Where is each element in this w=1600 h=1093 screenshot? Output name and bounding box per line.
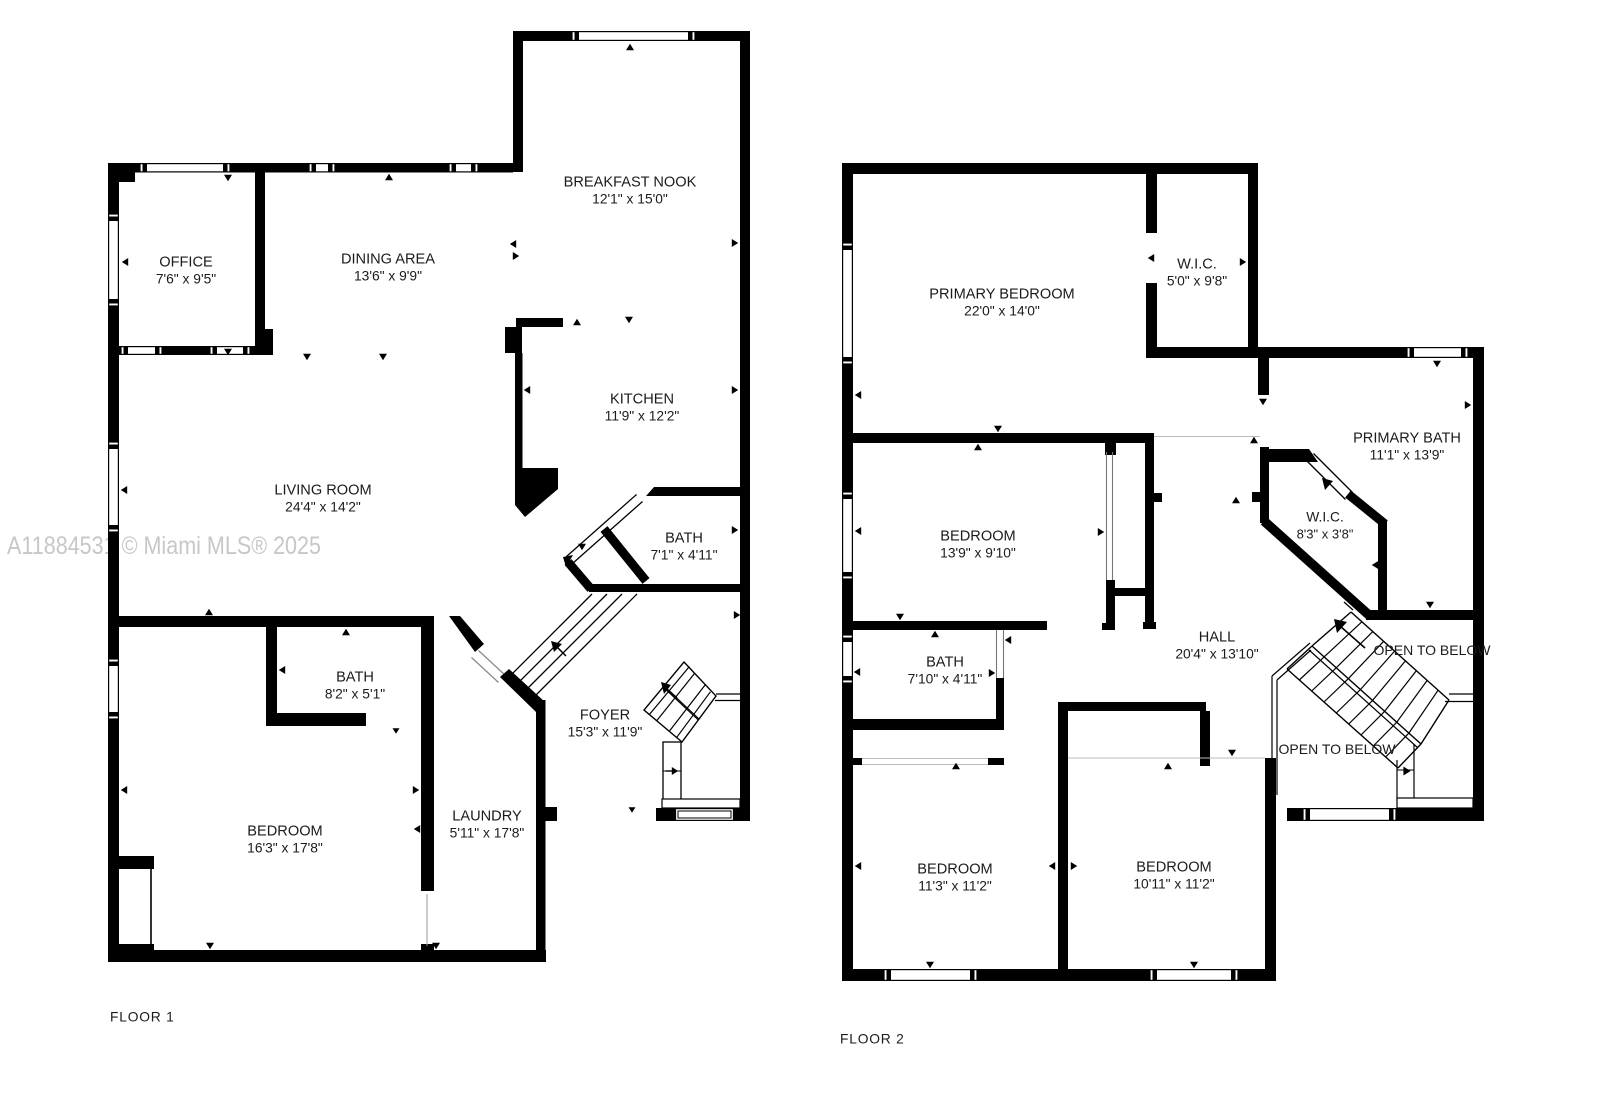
svg-text:PRIMARY BEDROOM: PRIMARY BEDROOM bbox=[929, 287, 1074, 303]
svg-text:KITCHEN: KITCHEN bbox=[610, 392, 674, 408]
svg-text:15'3" x 11'9": 15'3" x 11'9" bbox=[568, 725, 643, 740]
svg-text:BEDROOM: BEDROOM bbox=[247, 824, 322, 840]
svg-text:BATH: BATH bbox=[665, 531, 703, 547]
svg-text:7'1" x 4'11": 7'1" x 4'11" bbox=[651, 548, 718, 563]
svg-text:LAUNDRY: LAUNDRY bbox=[452, 809, 522, 825]
svg-text:BEDROOM: BEDROOM bbox=[940, 529, 1015, 545]
svg-text:8'3" x 3'8": 8'3" x 3'8" bbox=[1297, 527, 1354, 542]
svg-text:OPEN TO BELOW: OPEN TO BELOW bbox=[1374, 642, 1492, 658]
svg-text:8'2" x 5'1": 8'2" x 5'1" bbox=[325, 687, 385, 702]
svg-text:BEDROOM: BEDROOM bbox=[1136, 860, 1211, 876]
svg-text:BEDROOM: BEDROOM bbox=[917, 862, 992, 878]
svg-text:A11884531 © Miami MLS® 2025: A11884531 © Miami MLS® 2025 bbox=[7, 532, 321, 560]
svg-text:13'6" x 9'9": 13'6" x 9'9" bbox=[354, 269, 422, 284]
svg-text:OFFICE: OFFICE bbox=[159, 255, 213, 271]
svg-text:BATH: BATH bbox=[336, 670, 374, 686]
svg-text:W.I.C.: W.I.C. bbox=[1306, 510, 1344, 525]
svg-text:13'9" x 9'10": 13'9" x 9'10" bbox=[940, 546, 1016, 561]
svg-text:PRIMARY BATH: PRIMARY BATH bbox=[1353, 431, 1461, 447]
svg-text:7'10" x 4'11": 7'10" x 4'11" bbox=[908, 672, 983, 687]
svg-text:LIVING ROOM: LIVING ROOM bbox=[274, 483, 371, 499]
svg-text:11'3" x 11'2": 11'3" x 11'2" bbox=[918, 879, 992, 894]
svg-text:24'4" x 14'2": 24'4" x 14'2" bbox=[285, 500, 361, 515]
svg-text:BREAKFAST NOOK: BREAKFAST NOOK bbox=[564, 175, 697, 191]
svg-text:5'0" x 9'8": 5'0" x 9'8" bbox=[1167, 274, 1227, 289]
svg-text:HALL: HALL bbox=[1199, 630, 1236, 646]
svg-text:11'9" x 12'2": 11'9" x 12'2" bbox=[605, 409, 680, 424]
svg-text:FLOOR 1: FLOOR 1 bbox=[110, 1010, 175, 1025]
svg-text:10'11" x 11'2": 10'11" x 11'2" bbox=[1133, 877, 1214, 892]
svg-text:BATH: BATH bbox=[926, 655, 964, 671]
svg-text:12'1" x 15'0": 12'1" x 15'0" bbox=[592, 192, 668, 207]
svg-text:5'11" x 17'8": 5'11" x 17'8" bbox=[450, 826, 525, 841]
svg-text:OPEN TO BELOW: OPEN TO BELOW bbox=[1279, 741, 1397, 757]
svg-text:DINING AREA: DINING AREA bbox=[341, 252, 435, 268]
svg-text:7'6" x 9'5": 7'6" x 9'5" bbox=[156, 272, 216, 287]
svg-text:22'0" x 14'0": 22'0" x 14'0" bbox=[964, 304, 1040, 319]
svg-text:20'4" x 13'10": 20'4" x 13'10" bbox=[1175, 647, 1258, 662]
svg-text:W.I.C.: W.I.C. bbox=[1177, 257, 1217, 273]
svg-text:FLOOR 2: FLOOR 2 bbox=[840, 1032, 905, 1047]
svg-text:11'1" x 13'9": 11'1" x 13'9" bbox=[1370, 448, 1445, 463]
svg-text:16'3" x 17'8": 16'3" x 17'8" bbox=[247, 841, 323, 856]
svg-text:FOYER: FOYER bbox=[580, 708, 630, 724]
